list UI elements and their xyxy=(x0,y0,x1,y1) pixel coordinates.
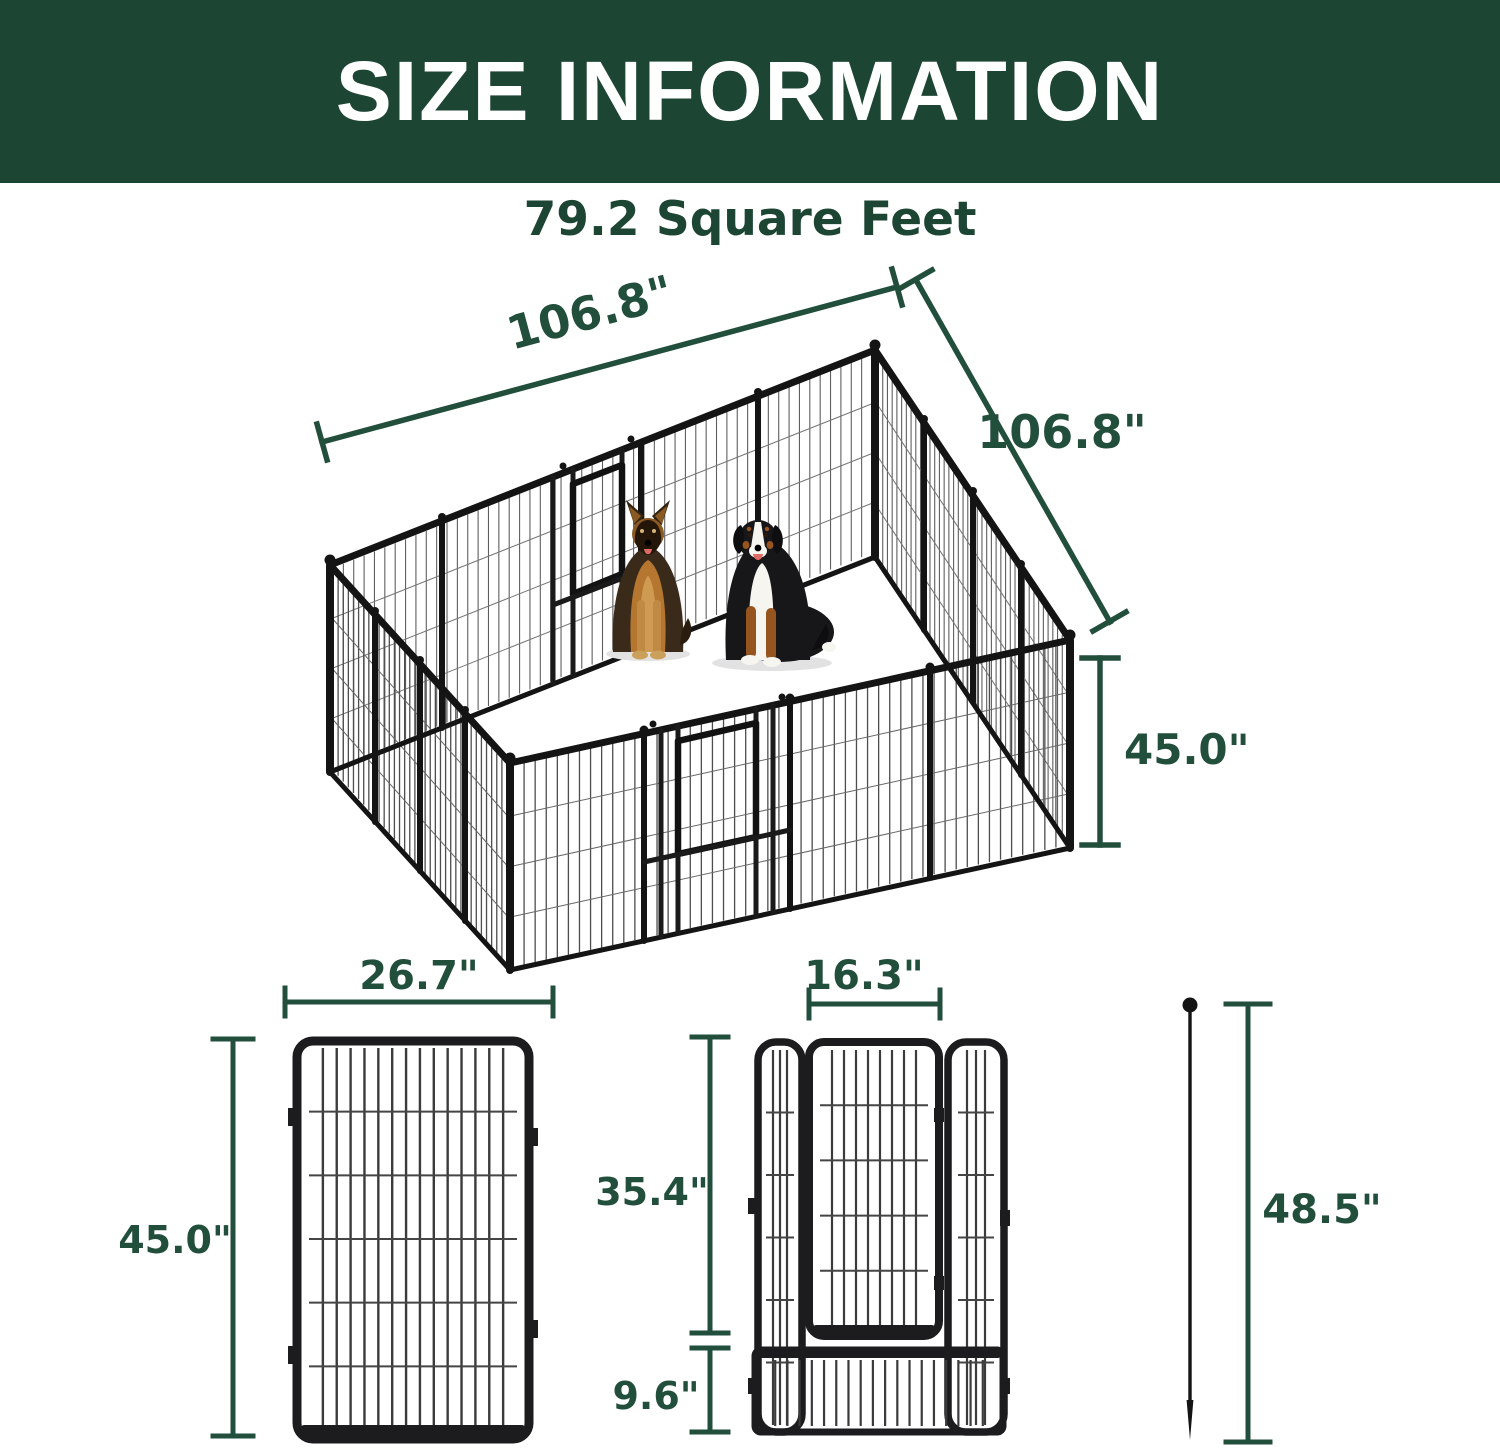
door-bottom-dimension: 9.6" xyxy=(612,1348,728,1432)
ground-stake-figure: 48.5" xyxy=(1183,998,1382,1443)
door-width-label: 16.3" xyxy=(804,953,924,999)
size-information-page: SIZE INFORMATION 79.2 Square Feet xyxy=(0,0,1500,1448)
pen-height-label: 45.0" xyxy=(1124,725,1250,774)
right-depth-label: 106.8" xyxy=(977,405,1146,459)
dimension-top-width: 106.8" xyxy=(317,265,902,460)
door-height-dimension: 35.4" xyxy=(595,1037,728,1333)
panel-height-label: 45.0" xyxy=(118,1218,232,1262)
page-title: SIZE INFORMATION xyxy=(336,43,1164,140)
panel-mesh xyxy=(309,1048,517,1430)
panel-height-dimension: 45.0" xyxy=(118,1039,253,1436)
bernese-mountain-dog-illustration xyxy=(712,520,836,671)
detail-figures: 26.7" 45.0" 16.3" xyxy=(0,948,1500,1448)
door-side-mesh-left xyxy=(766,1050,794,1425)
door-panel-figure: 16.3" 35.4" 9.6" xyxy=(595,953,1010,1432)
door-side-mesh-right xyxy=(958,1050,994,1425)
top-width-label: 106.8" xyxy=(501,265,679,361)
stake-height-dimension: 48.5" xyxy=(1226,1004,1382,1442)
single-panel-figure: 26.7" 45.0" xyxy=(118,953,553,1439)
playpen-overview-figure: 106.8" 106.8" 45.0" xyxy=(0,250,1500,980)
door-bottom-label: 9.6" xyxy=(612,1374,699,1418)
door-mesh xyxy=(820,1050,928,1326)
door-height-label: 35.4" xyxy=(595,1170,709,1214)
header-banner: SIZE INFORMATION xyxy=(0,0,1500,183)
stake-height-label: 48.5" xyxy=(1262,1187,1382,1233)
panel-width-label: 26.7" xyxy=(359,953,479,999)
area-subtitle: 79.2 Square Feet xyxy=(0,192,1500,247)
dimension-pen-height: 45.0" xyxy=(1082,658,1250,845)
